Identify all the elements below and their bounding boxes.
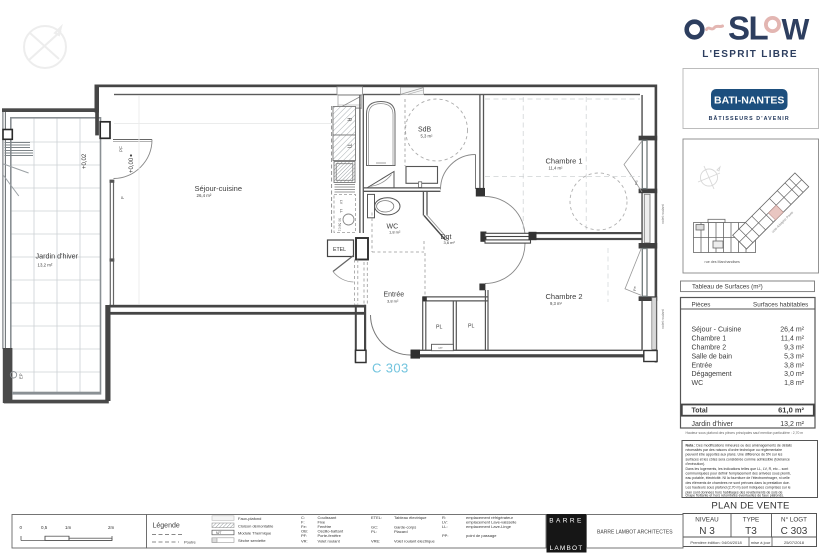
svg-text:LL:: LL: <box>442 524 448 529</box>
svg-text:9,3 m²: 9,3 m² <box>550 301 562 306</box>
svg-text:Fe: Fe <box>634 180 639 185</box>
svg-text:1m: 1m <box>65 525 72 530</box>
svg-text:PL: PL <box>436 325 442 331</box>
svg-text:13,2 m²: 13,2 m² <box>780 421 804 428</box>
svg-text:Tableau électrique: Tableau électrique <box>394 515 427 520</box>
svg-text:Fe: Fe <box>632 286 637 291</box>
svg-text:eau potable, électricité. NI l: eau potable, électricité. NI la fournitu… <box>686 476 790 480</box>
svg-text:VRE:: VRE: <box>371 539 380 544</box>
svg-text:Volet roulant électrique: Volet roulant électrique <box>394 539 435 544</box>
svg-text:surfaces et les côtes sera con: surfaces et les côtes sera considérée co… <box>686 457 790 461</box>
svg-text:emplacement Lave-Linge: emplacement Lave-Linge <box>466 524 512 529</box>
svg-text:ETEL:: ETEL: <box>371 515 382 520</box>
svg-text:Salle de bain: Salle de bain <box>692 354 733 361</box>
svg-text:90 58 01: 90 58 01 <box>338 218 342 231</box>
svg-text:61,0 m²: 61,0 m² <box>778 406 804 415</box>
svg-text:volet roulant: volet roulant <box>661 309 665 329</box>
svg-text:Chambre 1: Chambre 1 <box>546 157 583 166</box>
svg-text:Dégagement: Dégagement <box>692 371 732 378</box>
svg-text:11,4 m²: 11,4 m² <box>549 166 563 171</box>
svg-text:PF: PF <box>119 146 124 152</box>
svg-text:Sèche serviette: Sèche serviette <box>238 538 266 543</box>
svg-text:VR:: VR: <box>301 539 308 544</box>
svg-text:N 3: N 3 <box>699 526 715 537</box>
svg-text:Hauteur sous plafond des pièce: Hauteur sous plafond des pièces principa… <box>686 431 804 435</box>
svg-text:volet roulant: volet roulant <box>661 204 665 224</box>
svg-text:1,8 m²: 1,8 m² <box>389 230 401 235</box>
svg-text:Chambre 2: Chambre 2 <box>546 292 583 301</box>
svg-text:+0,02: +0,02 <box>82 153 88 169</box>
svg-text:Faux-plafond: Faux-plafond <box>238 516 261 521</box>
svg-text:C 303: C 303 <box>372 361 409 376</box>
svg-text:peuvent être apportés aux plan: peuvent être apportés aux plans. Une dif… <box>686 453 783 457</box>
svg-text:5,3 m²: 5,3 m² <box>784 354 805 361</box>
svg-text:EP: EP <box>19 373 24 379</box>
svg-text:5,3 m²: 5,3 m² <box>421 134 433 139</box>
svg-text:R: R <box>346 118 352 122</box>
svg-text:Pièces: Pièces <box>692 301 711 308</box>
svg-text:2m: 2m <box>108 525 115 530</box>
svg-text:chape flottante et hors retomb: chape flottante et hors retombées éventu… <box>686 494 784 498</box>
svg-text:3,6 m²: 3,6 m² <box>444 240 456 245</box>
svg-text:d'exécution).: d'exécution). <box>686 462 706 466</box>
svg-text:9,3 m²: 9,3 m² <box>784 345 805 352</box>
svg-text:Cloison démontable: Cloison démontable <box>238 523 274 528</box>
svg-text:PP:: PP: <box>442 533 448 538</box>
svg-text:L'ESPRIT LIBRE: L'ESPRIT LIBRE <box>702 49 798 60</box>
svg-text:F: F <box>120 196 125 199</box>
svg-text:MT: MT <box>439 346 443 350</box>
svg-text:3,0 m²: 3,0 m² <box>784 371 805 378</box>
svg-text:Module Thermique: Module Thermique <box>238 531 272 536</box>
svg-text:BATI-NANTES: BATI-NANTES <box>714 94 784 106</box>
svg-text:25/07/2018: 25/07/2018 <box>784 540 805 545</box>
svg-text:Entrée: Entrée <box>692 362 713 369</box>
svg-text:0,5: 0,5 <box>41 525 48 530</box>
svg-text:Chambre 2: Chambre 2 <box>692 345 727 352</box>
svg-text:PL: PL <box>468 324 474 330</box>
svg-text:3,8 m²: 3,8 m² <box>387 299 399 304</box>
svg-text:Les hauteurs sous plafond (2,7: Les hauteurs sous plafond (2,70 m) sont … <box>686 486 791 490</box>
svg-text:Jardin d'hiver: Jardin d'hiver <box>692 421 734 428</box>
svg-text:26,4 m²: 26,4 m² <box>780 327 804 334</box>
svg-text:BARRE: BARRE <box>549 518 583 525</box>
svg-text:Séjour-cuisine: Séjour-cuisine <box>195 184 243 193</box>
svg-text:Porte-fenêtre: Porte-fenêtre <box>318 533 342 538</box>
svg-text:11,4 m²: 11,4 m² <box>781 336 805 343</box>
svg-text:W: W <box>782 14 810 47</box>
svg-text:communiquées pour définir l'em: communiquées pour définir l'emplacement … <box>686 472 792 476</box>
svg-text:Dans les logements, les indica: Dans les logements, les indications tell… <box>686 467 789 471</box>
svg-text:LV: LV <box>339 200 343 205</box>
svg-text:Première édition: 04/04/2018: Première édition: 04/04/2018 <box>690 540 742 545</box>
svg-text:M/T: M/T <box>216 531 222 535</box>
svg-text:N° LOGT: N° LOGT <box>781 516 807 524</box>
svg-text:WC: WC <box>692 380 704 387</box>
svg-text:26,4 m²: 26,4 m² <box>197 193 212 198</box>
svg-text:1,8 m²: 1,8 m² <box>784 380 805 387</box>
svg-text:C 303: C 303 <box>781 526 808 537</box>
svg-text:T3: T3 <box>745 526 757 537</box>
svg-text:Séjour - Cuisine: Séjour - Cuisine <box>692 327 742 334</box>
svg-text:Volet roulant: Volet roulant <box>318 539 341 544</box>
svg-text:TI: TI <box>346 144 352 149</box>
svg-text:des éléments de chambres ne so: des éléments de chambres ne sont prévues… <box>686 481 790 485</box>
svg-text:Nota : Des modifications mineu: Nota : Des modifications mineures ou des… <box>686 443 793 447</box>
svg-text:SdB: SdB <box>418 127 432 134</box>
svg-text:+0,00: +0,00 <box>129 157 135 173</box>
svg-text:Poutre: Poutre <box>184 540 197 545</box>
svg-text:13,2 m²: 13,2 m² <box>38 263 53 268</box>
svg-text:PF:: PF: <box>301 533 307 538</box>
svg-text:Jardin d'hiver: Jardin d'hiver <box>36 252 79 261</box>
svg-text:Surfaces habitables: Surfaces habitables <box>753 301 808 308</box>
svg-text:3,8 m²: 3,8 m² <box>784 362 805 369</box>
svg-text:NIVEAU: NIVEAU <box>695 517 719 524</box>
svg-text:mise à jour: mise à jour <box>751 540 771 545</box>
svg-text:PL:: PL: <box>371 529 377 534</box>
svg-text:ETEL: ETEL <box>333 247 346 253</box>
svg-text:S: S <box>728 10 750 47</box>
svg-text:Total: Total <box>692 408 708 415</box>
svg-text:LAMBOT: LAMBOT <box>550 545 584 552</box>
svg-text:Entrée: Entrée <box>384 292 405 299</box>
svg-text:nécessités par des raisons d'o: nécessités par des raisons d'ordre techn… <box>686 448 783 452</box>
svg-text:Tableau de Surfaces (m²): Tableau de Surfaces (m²) <box>692 284 763 291</box>
svg-text:Chambre 1: Chambre 1 <box>692 336 727 343</box>
svg-text:BÂTISSEURS D'AVENIR: BÂTISSEURS D'AVENIR <box>709 115 790 122</box>
svg-text:point de passage: point de passage <box>466 533 497 538</box>
svg-text:Légende: Légende <box>153 523 180 530</box>
svg-text:PLAN DE VENTE: PLAN DE VENTE <box>711 501 789 512</box>
svg-text:rue des Marchandises: rue des Marchandises <box>705 260 741 264</box>
svg-text:LL: LL <box>339 209 343 213</box>
svg-text:TYPE: TYPE <box>743 517 759 524</box>
svg-text:Placard: Placard <box>394 529 408 534</box>
svg-text:BARRE LAMBOT ARCHITECTES: BARRE LAMBOT ARCHITECTES <box>597 530 673 536</box>
